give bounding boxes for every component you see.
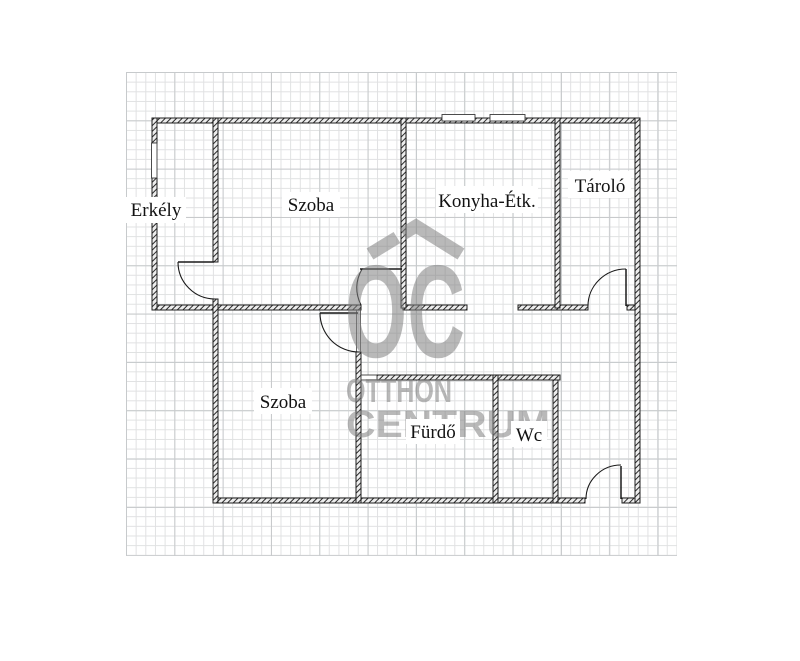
room-label-furdo-text: Fürdő <box>410 422 455 443</box>
watermark-logo: OC OTTHON CENTRUM <box>345 226 550 446</box>
watermark-monogram: OC <box>345 238 465 385</box>
room-label-konyha-etk: Konyha-Étk. <box>436 186 538 213</box>
room-label-konyha-etk-text: Konyha-Étk. <box>438 190 536 212</box>
room-label-furdo: Fürdő <box>406 419 460 444</box>
window-balcony-left <box>152 143 158 178</box>
door-storage <box>588 269 626 306</box>
door-entrance <box>586 465 621 499</box>
wall-left-outer-upper <box>152 118 157 143</box>
wall-kitchen-storage-divider <box>555 118 560 308</box>
wall-top-outer <box>152 118 640 123</box>
room-label-tarolo: Tároló <box>568 171 631 198</box>
room-label-tarolo-text: Tároló <box>575 176 626 197</box>
room-label-szoba-bottom: Szoba <box>254 388 312 414</box>
room-label-wc-text: Wc <box>516 425 542 446</box>
room-label-szoba-bottom-text: Szoba <box>260 392 307 413</box>
window-kitchen-2 <box>490 115 525 122</box>
wall-mid-left <box>152 305 361 310</box>
floorplan-page: OC OTTHON CENTRUM Erkély Szoba Konyha-Ét… <box>0 0 800 661</box>
window-kitchen-1 <box>442 115 475 122</box>
wall-mid-right <box>518 305 588 310</box>
wall-bottom-outer <box>213 498 585 503</box>
wall-right-outer <box>635 118 640 503</box>
room-label-wc: Wc <box>511 421 547 447</box>
wall-balcony-divider-lower <box>213 299 218 503</box>
windows <box>152 115 526 381</box>
room-label-erkely: Erkély <box>126 197 186 223</box>
floorplan-drawing: OC OTTHON CENTRUM Erkély Szoba Konyha-Ét… <box>0 0 800 661</box>
room-label-szoba-top: Szoba <box>282 192 340 217</box>
door-balcony <box>178 262 215 299</box>
room-label-erkely-text: Erkély <box>131 200 182 221</box>
wall-balcony-divider-upper <box>213 118 218 262</box>
wall-wc-right <box>553 380 558 503</box>
room-label-szoba-top-text: Szoba <box>288 195 335 216</box>
